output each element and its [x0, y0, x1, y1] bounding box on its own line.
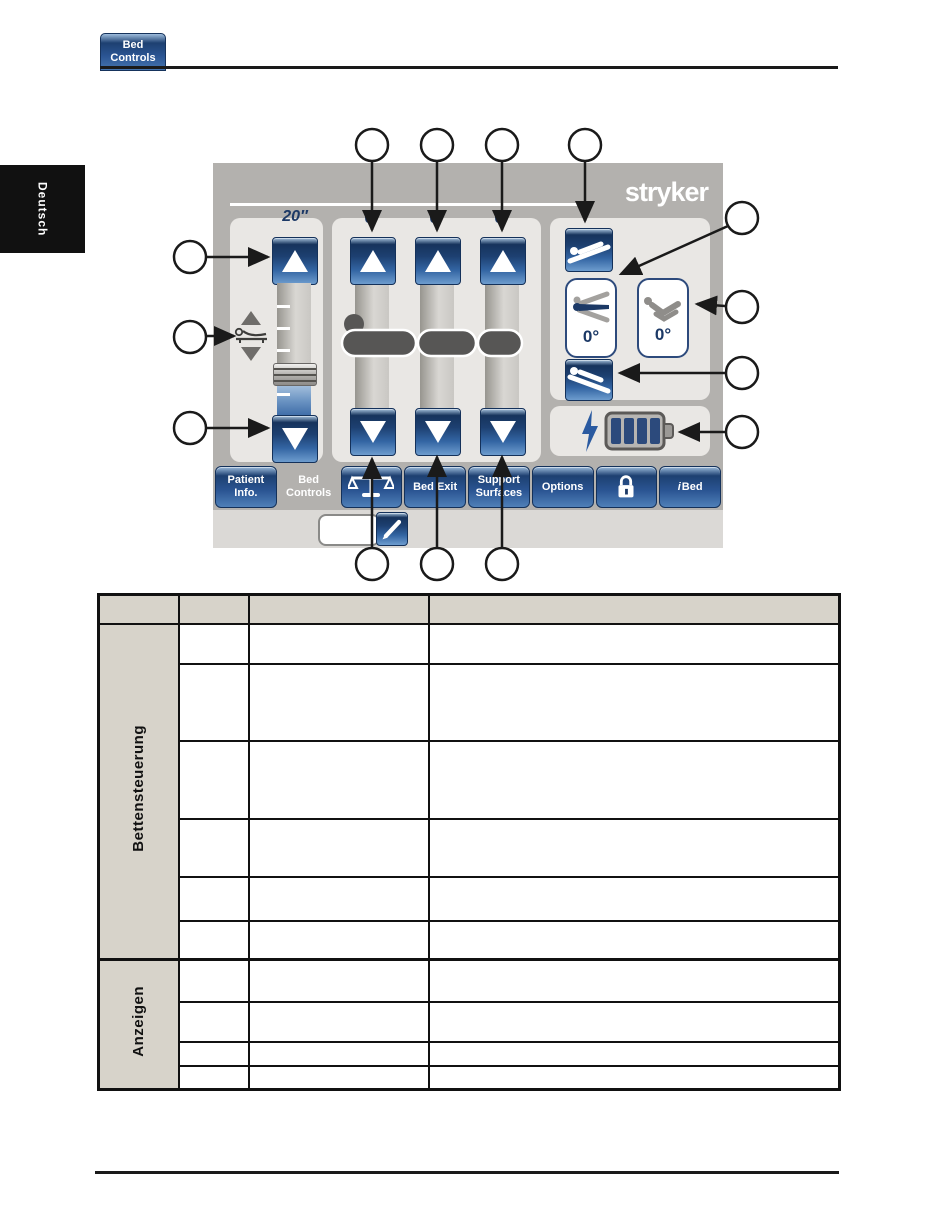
group-cell-anzeigen: Anzeigen [99, 959, 179, 1089]
knee-angle-indicator[interactable]: 0° [637, 278, 689, 358]
footer-divider [95, 1171, 839, 1174]
callout-circle [421, 129, 453, 161]
group-label: Anzeigen [130, 986, 147, 1057]
note-field[interactable] [318, 514, 380, 546]
seat-up-button[interactable] [415, 237, 461, 285]
bed-down-button[interactable] [272, 415, 318, 463]
screen-bottom-strip [213, 510, 723, 548]
bed-incline-head-up-icon [567, 233, 611, 267]
down-arrow-icon [282, 428, 308, 450]
callout-circle [486, 548, 518, 580]
stryker-logo: stryker [596, 177, 708, 208]
screen-tab-bar: Patient Info. Bed Controls Bed Exit Supp… [215, 466, 721, 508]
callout-circle [356, 129, 388, 161]
up-arrow-icon [282, 250, 308, 272]
bed-angle-value: 0° [583, 327, 599, 347]
tab-lock[interactable] [596, 466, 658, 508]
header-cell [99, 595, 179, 625]
table-header-row [99, 595, 840, 625]
tab-bed-controls[interactable]: Bed Controls [279, 466, 339, 508]
track-tick [277, 305, 290, 308]
table-row [99, 921, 840, 959]
tab-ibed[interactable]: iBed [659, 466, 721, 508]
callout-circle [726, 416, 758, 448]
bed-angle-indicator[interactable]: 0° [565, 278, 617, 358]
battery-section [550, 406, 710, 456]
ibed-prefix: i [678, 481, 681, 493]
down-arrow-icon [425, 421, 451, 443]
tab-options[interactable]: Options [532, 466, 594, 508]
bed-sections-panel: 0° 0° 0° [332, 218, 541, 462]
header-cell [249, 595, 429, 625]
table-row [99, 1042, 840, 1066]
callout-circle [726, 202, 758, 234]
foot-down-button[interactable] [480, 408, 526, 456]
tab-patient-info[interactable]: Patient Info. [215, 466, 277, 508]
bed-height-track [277, 283, 311, 415]
table-row [99, 1066, 840, 1089]
bed-height-section: 20″ [230, 218, 323, 462]
bed-incline-head-down-icon [567, 363, 611, 397]
callout-circle [174, 321, 206, 353]
padlock-icon [613, 472, 639, 502]
bed-height-slider-handle[interactable] [273, 363, 317, 386]
knee-angle-value: 0° [655, 325, 671, 345]
knee-gatch-angle-icon [643, 292, 683, 322]
header-cell [429, 595, 840, 625]
balance-scale-icon [348, 471, 394, 503]
bed-height-value: 20″ [272, 208, 318, 226]
tab-bed-exit[interactable]: Bed Exit [404, 466, 466, 508]
tab-support-surfaces[interactable]: Support Surfaces [468, 466, 530, 508]
callout-circle [726, 357, 758, 389]
table-row [99, 664, 840, 741]
table-row [99, 741, 840, 819]
legend-table: Bettensteuerung Anzeigen [97, 593, 841, 1091]
group-cell-bettensteuerung: Bettensteuerung [99, 624, 179, 959]
table-row [99, 1002, 840, 1042]
incline-head-down-button[interactable] [565, 359, 613, 401]
foot-up-button[interactable] [480, 237, 526, 285]
up-arrow-icon [360, 250, 386, 272]
table-row [99, 877, 840, 921]
battery-status-icon [580, 408, 680, 454]
bed-control-screen: stryker 20″ [213, 163, 723, 548]
track-tick [277, 327, 290, 330]
head-of-bed-angle-icon [571, 290, 611, 324]
pencil-icon [379, 516, 405, 542]
incline-head-up-button[interactable] [565, 228, 613, 272]
bed-up-button[interactable] [272, 237, 318, 285]
ibed-label: Bed [682, 481, 703, 493]
head-section-angle: 0° [349, 210, 395, 228]
callout-circle [726, 291, 758, 323]
down-arrow-icon [360, 421, 386, 443]
language-tab-label: Deutsch [36, 182, 50, 236]
bed-height-fill [277, 384, 311, 415]
tab-scale[interactable] [341, 466, 403, 508]
head-down-button[interactable] [350, 408, 396, 456]
header-cell [179, 595, 249, 625]
callout-circle [174, 241, 206, 273]
patient-lying-figure-icon [340, 312, 524, 358]
up-arrow-icon [490, 250, 516, 272]
seat-section-angle: 0° [414, 210, 460, 228]
callout-circle [356, 548, 388, 580]
down-arrow-icon [490, 421, 516, 443]
callout-circle [174, 412, 206, 444]
group-label: Bettensteuerung [130, 725, 147, 852]
seat-down-button[interactable] [415, 408, 461, 456]
header-divider [100, 66, 838, 69]
callout-circle [486, 129, 518, 161]
bed-height-adjust-icon [233, 310, 269, 362]
track-tick [277, 349, 290, 352]
foot-section-angle: 0° [479, 210, 525, 228]
callout-circle [421, 548, 453, 580]
up-arrow-icon [425, 250, 451, 272]
track-tick [277, 393, 290, 396]
bed-position-panel: 0° 0° [550, 218, 710, 400]
language-tab: Deutsch [0, 165, 85, 253]
screen-divider-line [230, 203, 590, 206]
lightning-bolt-icon [582, 410, 598, 452]
head-up-button[interactable] [350, 237, 396, 285]
table-row: Anzeigen [99, 959, 840, 1002]
callout-circle [569, 129, 601, 161]
table-row: Bettensteuerung [99, 624, 840, 664]
table-row [99, 819, 840, 877]
edit-button[interactable] [376, 512, 408, 546]
manual-page: Bed Controls Deutsch stryker 20″ [0, 0, 950, 1229]
